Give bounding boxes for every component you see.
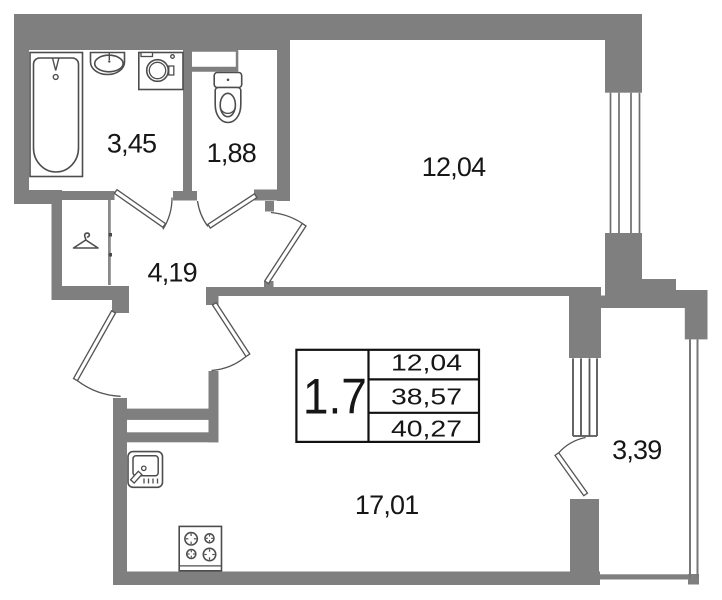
svg-text:1.7: 1.7 (303, 368, 367, 424)
svg-text:4,19: 4,19 (148, 258, 197, 288)
svg-text:17,01: 17,01 (355, 490, 419, 520)
svg-text:3,45: 3,45 (107, 128, 156, 158)
svg-text:40,27: 40,27 (391, 415, 462, 441)
svg-text:38,57: 38,57 (391, 383, 462, 409)
svg-text:3,39: 3,39 (612, 435, 661, 465)
svg-text:12,04: 12,04 (391, 349, 462, 375)
svg-text:12,04: 12,04 (422, 152, 486, 182)
svg-text:1,88: 1,88 (207, 138, 256, 168)
